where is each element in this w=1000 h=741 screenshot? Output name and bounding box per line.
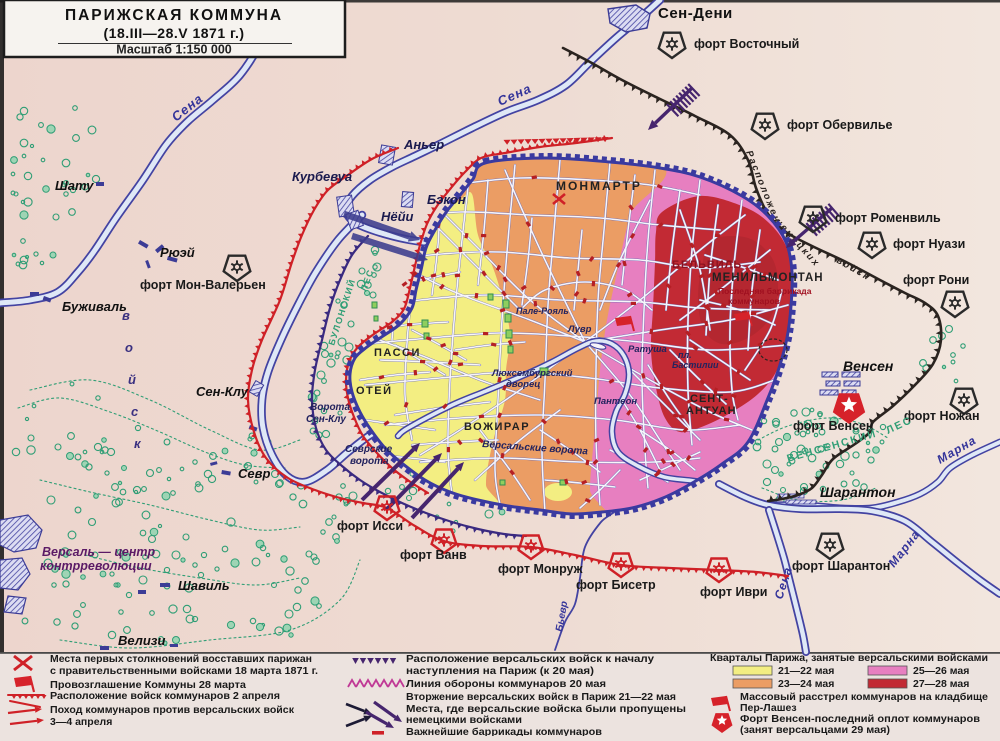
- svg-text:Пале-Рояль: Пале-Рояль: [516, 306, 569, 316]
- svg-text:Рюэй: Рюэй: [160, 245, 195, 260]
- svg-text:Лувр: Лувр: [567, 324, 592, 335]
- svg-text:(18.III—28.V 1871 г.): (18.III—28.V 1871 г.): [104, 25, 245, 41]
- svg-text:о: о: [125, 340, 133, 355]
- svg-text:Ворота: Ворота: [310, 402, 350, 413]
- svg-text:контрреволюции: контрреволюции: [40, 559, 152, 573]
- svg-text:форт Бисетр: форт Бисетр: [576, 578, 656, 592]
- svg-text:форт Иври: форт Иври: [700, 585, 767, 599]
- svg-text:в: в: [122, 308, 130, 323]
- svg-text:Бастилии: Бастилии: [672, 360, 719, 370]
- svg-text:ВОЖИРАР: ВОЖИРАР: [464, 421, 530, 433]
- svg-text:Места первых столкновений восс: Места первых столкновений восставших пар…: [50, 653, 312, 665]
- svg-text:форт Восточный: форт Восточный: [694, 37, 799, 51]
- svg-text:ОТЕЙ: ОТЕЙ: [356, 384, 393, 397]
- svg-text:форт Исси: форт Исси: [337, 519, 403, 533]
- svg-text:Расположение версальских вой: Расположение версальских войск к началу: [406, 653, 654, 665]
- svg-text:Шарантон: Шарантон: [820, 484, 896, 500]
- svg-text:немецкими войсками: немецкими войсками: [406, 714, 522, 726]
- svg-text:Сен-Дени: Сен-Дени: [658, 5, 733, 22]
- svg-text:форт Ножан: форт Ножан: [904, 409, 980, 423]
- svg-text:Буживаль: Буживаль: [62, 299, 127, 314]
- svg-text:БЕЛЬВИЛЬ: БЕЛЬВИЛЬ: [672, 259, 742, 271]
- svg-text:форт Обервилье: форт Обервилье: [787, 118, 892, 132]
- svg-text:МЕНИЛЬМОНТАН: МЕНИЛЬМОНТАН: [712, 272, 824, 284]
- svg-text:ПАРИЖСКАЯ КОММУНА: ПАРИЖСКАЯ КОММУНА: [65, 7, 283, 24]
- svg-text:Линия обороны коммунаров 20: Линия обороны коммунаров 20 мая: [406, 678, 606, 690]
- svg-text:ворота: ворота: [350, 456, 389, 467]
- svg-text:форт Нуази: форт Нуази: [893, 237, 965, 251]
- svg-text:ПАССИ: ПАССИ: [374, 347, 421, 359]
- svg-text:с правительственными войсками: с правительственными войсками 18 марта 1…: [50, 665, 318, 677]
- svg-text:дворец: дворец: [506, 379, 540, 390]
- svg-text:21—22 мая: 21—22 мая: [778, 665, 834, 677]
- svg-text:Аньер: Аньер: [403, 137, 444, 152]
- svg-text:Важнейшие баррикады коммунар: Важнейшие баррикады коммунаров: [406, 726, 603, 736]
- svg-text:коммунаров: коммунаров: [728, 296, 780, 306]
- svg-text:Вторжение версальских войск в: Вторжение версальских войск в Париж 21—2…: [406, 691, 676, 703]
- svg-text:Севрские: Севрские: [345, 444, 393, 455]
- svg-text:Шавиль: Шавиль: [178, 578, 230, 593]
- svg-text:(занят версальцами 29 мая): (занят версальцами 29 мая): [740, 724, 890, 736]
- svg-text:Бэкон: Бэкон: [427, 192, 466, 207]
- svg-text:Сен-Клу: Сен-Клу: [196, 384, 249, 399]
- svg-text:Версаль — центр: Версаль — центр: [42, 545, 156, 559]
- svg-text:пл.: пл.: [678, 350, 692, 360]
- svg-text:Ратуша: Ратуша: [628, 344, 667, 355]
- svg-text:МОНМАРТР: МОНМАРТР: [556, 179, 642, 193]
- svg-text:Последняя баррикада: Последняя баррикада: [718, 286, 812, 296]
- svg-text:3—4 апреля: 3—4 апреля: [50, 716, 112, 728]
- svg-text:наступления на Париж (к 20: наступления на Париж (к 20 мая): [406, 665, 594, 677]
- svg-text:форт Мон-Валерьен: форт Мон-Валерьен: [140, 278, 266, 292]
- svg-text:й: й: [128, 372, 136, 387]
- svg-text:Курбевуа: Курбевуа: [292, 169, 352, 184]
- svg-text:Севр: Севр: [238, 466, 270, 481]
- svg-text:Кварталы Парижа, занятые в: Кварталы Парижа, занятые версальскими во…: [710, 652, 988, 664]
- svg-text:Люксембургский: Люксембургский: [491, 368, 573, 379]
- svg-text:Нёйи: Нёйи: [381, 209, 414, 224]
- svg-text:Поход коммунаров против версал: Поход коммунаров против версальских войс…: [50, 704, 295, 716]
- svg-text:Сен-Клу: Сен-Клу: [306, 414, 346, 425]
- svg-text:форт Роменвиль: форт Роменвиль: [835, 211, 941, 225]
- svg-text:Венсен: Венсен: [843, 358, 894, 374]
- svg-text:с: с: [131, 404, 139, 419]
- svg-text:форт Шарантон: форт Шарантон: [792, 559, 890, 573]
- svg-text:Масштаб 1:150 000: Масштаб 1:150 000: [116, 43, 232, 57]
- svg-text:форт Рони: форт Рони: [903, 273, 969, 287]
- svg-text:Пантеон: Пантеон: [594, 396, 637, 407]
- svg-text:Шату: Шату: [55, 178, 94, 193]
- svg-text:23—24 мая: 23—24 мая: [778, 678, 834, 690]
- svg-text:АНТУАН: АНТУАН: [686, 405, 737, 417]
- svg-text:Расположение войск коммунаров: Расположение войск коммунаров 2 апреля: [50, 690, 280, 702]
- svg-text:27—28 мая: 27—28 мая: [913, 678, 969, 690]
- svg-text:форт Монруж: форт Монруж: [498, 562, 583, 576]
- svg-text:25—26 мая: 25—26 мая: [913, 665, 969, 677]
- svg-text:Велизи: Велизи: [118, 633, 165, 648]
- svg-text:форт Ванв: форт Ванв: [400, 548, 467, 562]
- svg-text:СЕНТ-: СЕНТ-: [690, 393, 729, 405]
